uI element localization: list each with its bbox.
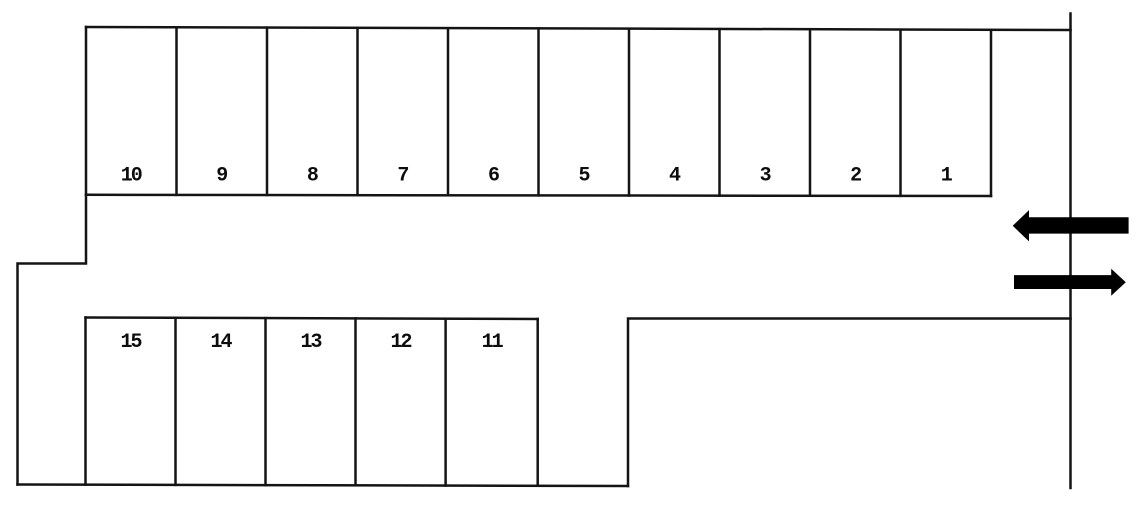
svg-text:7: 7 <box>397 165 408 188</box>
svg-text:4: 4 <box>669 165 681 188</box>
svg-text:15: 15 <box>120 331 141 354</box>
svg-text:1: 1 <box>941 165 953 188</box>
svg-text:10: 10 <box>121 165 142 188</box>
svg-text:11: 11 <box>482 331 504 354</box>
svg-text:2: 2 <box>850 165 861 188</box>
svg-text:8: 8 <box>307 165 318 188</box>
svg-text:13: 13 <box>300 331 321 354</box>
svg-text:14: 14 <box>210 331 232 354</box>
svg-text:9: 9 <box>216 165 227 188</box>
svg-text:12: 12 <box>390 331 411 354</box>
svg-text:6: 6 <box>488 165 499 188</box>
svg-text:5: 5 <box>578 165 589 188</box>
svg-text:3: 3 <box>760 165 771 188</box>
